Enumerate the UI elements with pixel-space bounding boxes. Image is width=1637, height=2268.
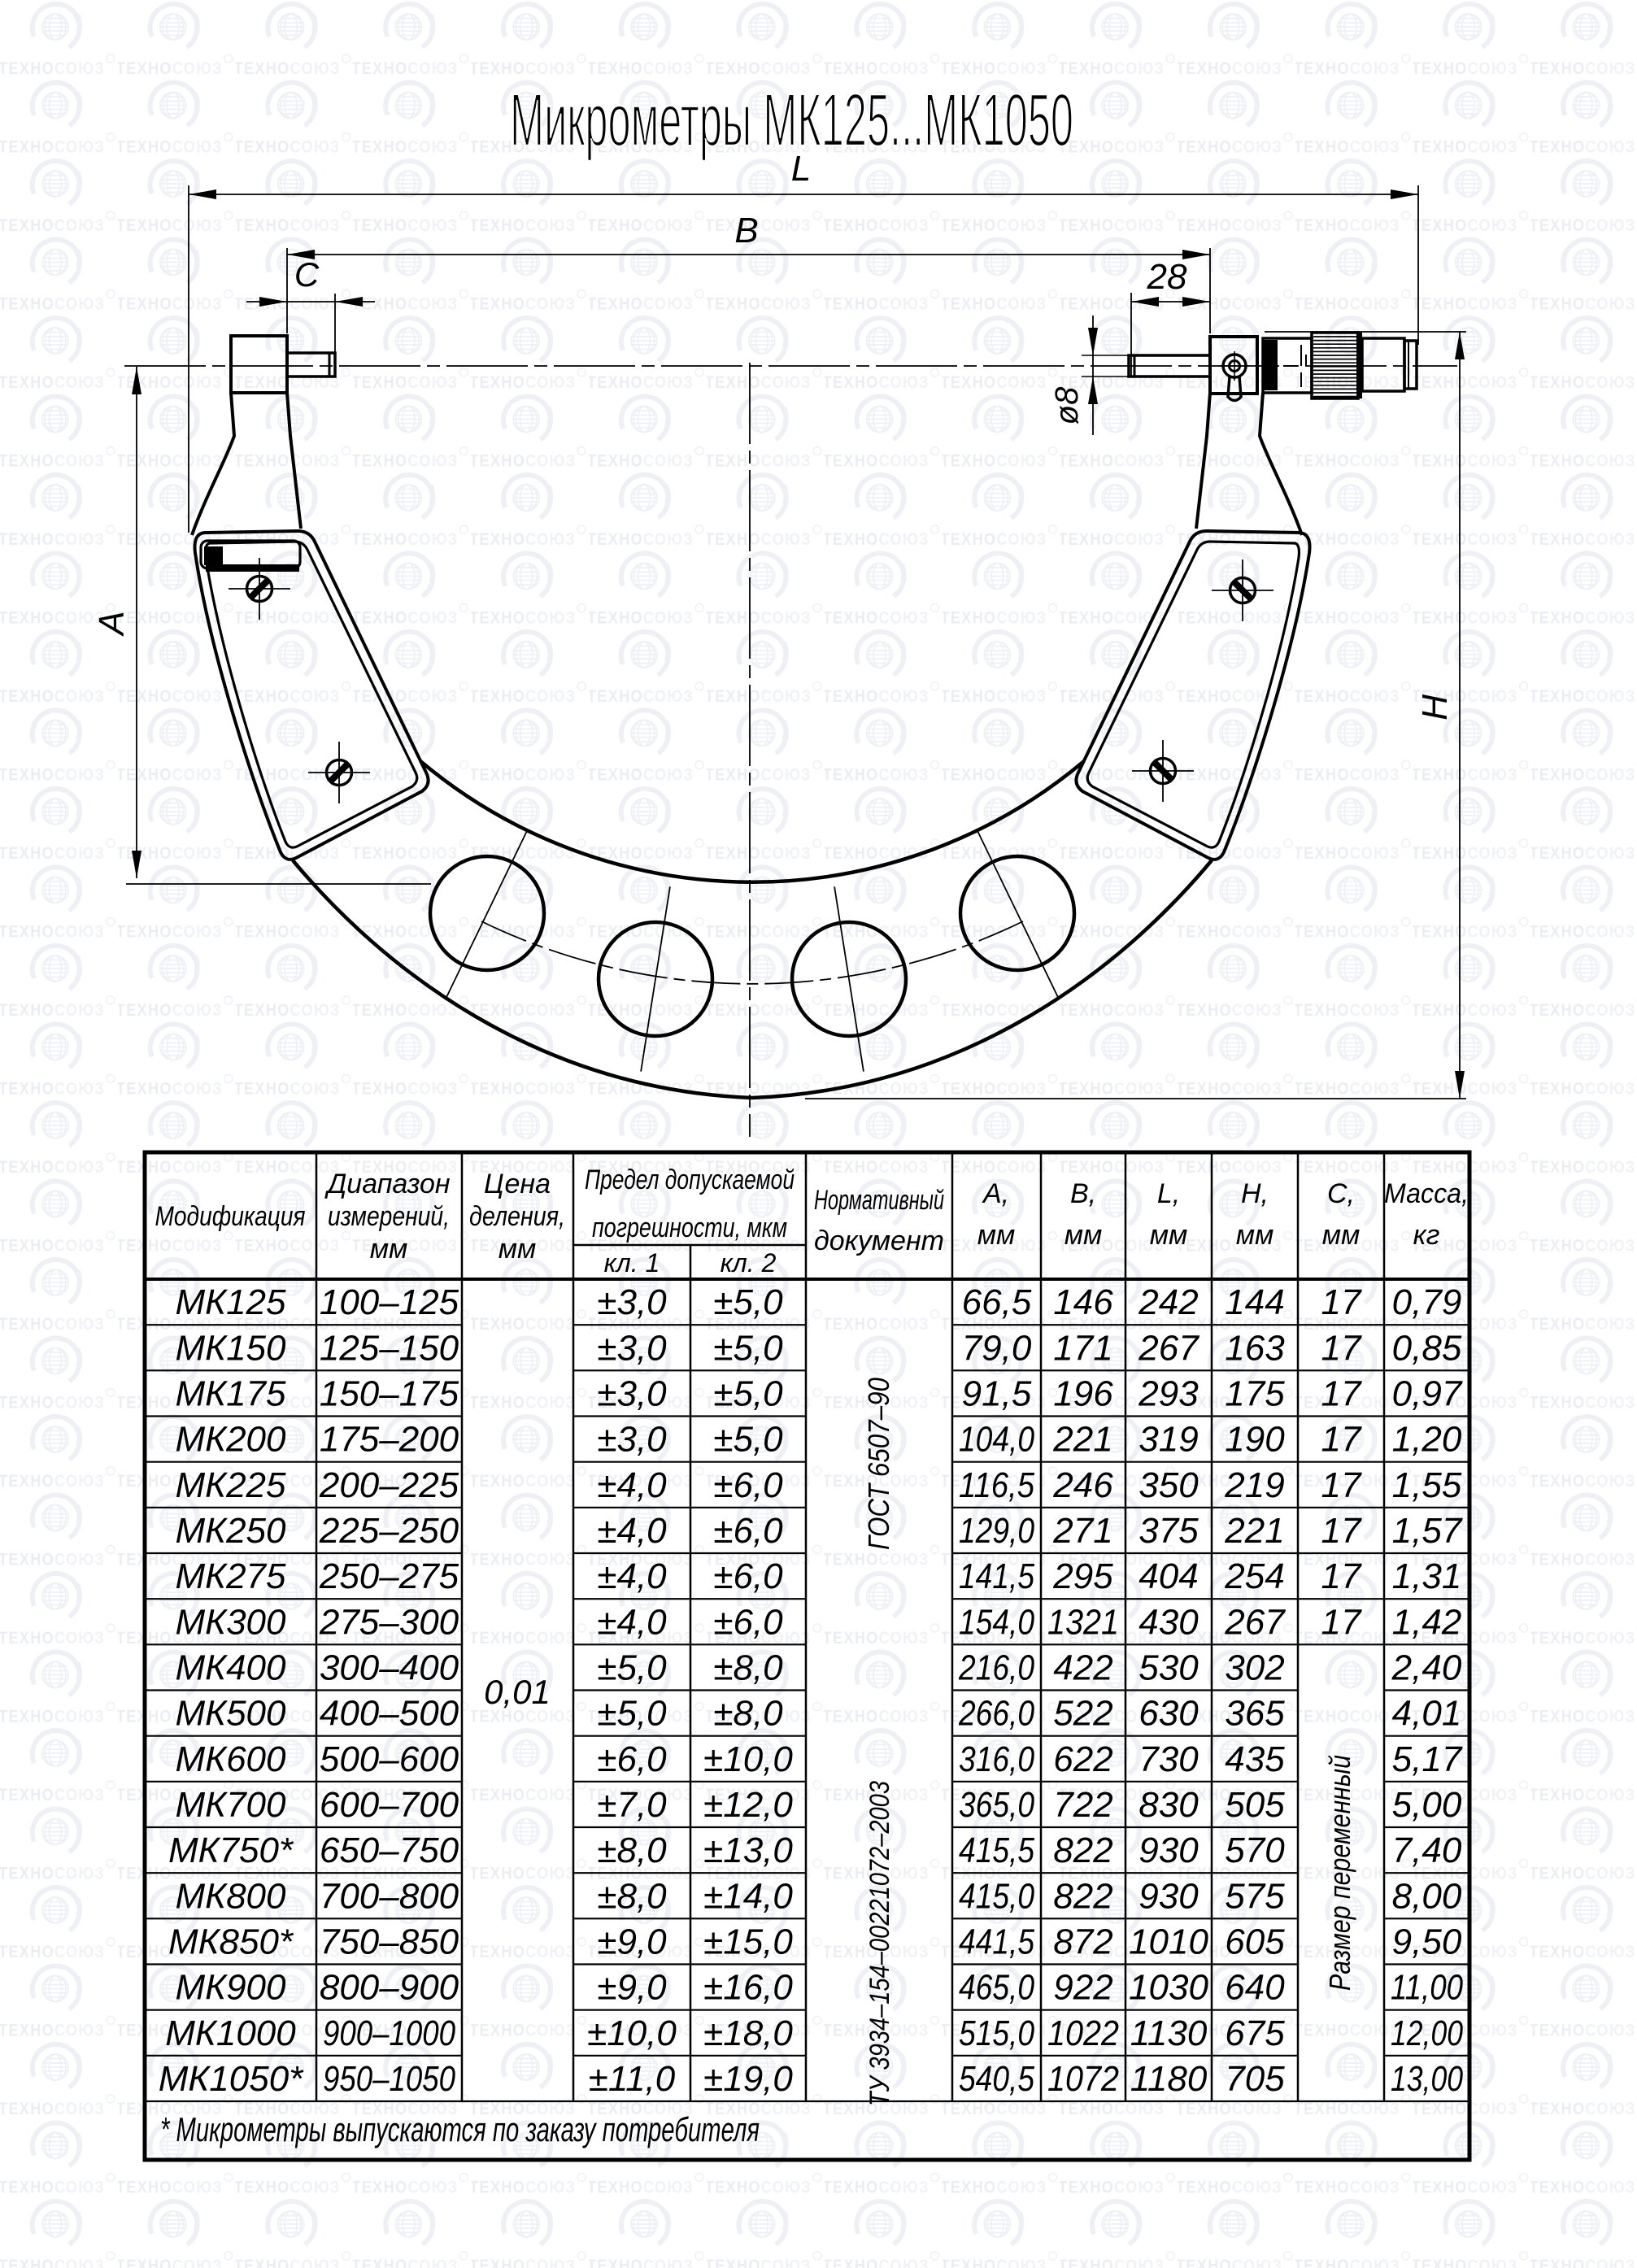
svg-text:365: 365 — [1225, 1694, 1285, 1734]
svg-text:295: 295 — [1052, 1556, 1113, 1596]
svg-text:515,0: 515,0 — [959, 2013, 1034, 2053]
svg-text:650–750: 650–750 — [320, 1831, 459, 1870]
svg-text:±4,0: ±4,0 — [597, 1465, 667, 1505]
svg-text:175: 175 — [1225, 1374, 1285, 1414]
svg-text:мм: мм — [499, 1234, 537, 1265]
svg-text:±18,0: ±18,0 — [703, 2013, 793, 2053]
svg-text:±7,0: ±7,0 — [597, 1785, 667, 1825]
svg-text:мм: мм — [977, 1220, 1016, 1251]
svg-text:171: 171 — [1053, 1328, 1112, 1368]
svg-text:66,5: 66,5 — [962, 1282, 1032, 1322]
svg-text:872: 872 — [1053, 1922, 1112, 1962]
svg-text:МК400: МК400 — [176, 1648, 287, 1688]
svg-text:365,0: 365,0 — [959, 1785, 1034, 1825]
svg-text:±9,0: ±9,0 — [597, 1968, 667, 2008]
svg-text:Масса,: Масса, — [1384, 1178, 1469, 1209]
svg-text:МК175: МК175 — [176, 1374, 287, 1414]
svg-text:±6,0: ±6,0 — [713, 1511, 783, 1551]
svg-text:950–1050: 950–1050 — [323, 2059, 455, 2099]
svg-text:1130: 1130 — [1130, 2013, 1208, 2053]
svg-text:±13,0: ±13,0 — [703, 1831, 793, 1870]
svg-text:17: 17 — [1321, 1556, 1362, 1596]
svg-text:17: 17 — [1321, 1282, 1362, 1322]
svg-text:A: A — [92, 611, 132, 637]
svg-text:722: 722 — [1053, 1785, 1112, 1825]
svg-text:ТУ 3934–154–00221072–2003: ТУ 3934–154–00221072–2003 — [864, 1781, 895, 2106]
svg-text:ГОСТ 6507–90: ГОСТ 6507–90 — [862, 1378, 895, 1550]
svg-text:МК700: МК700 — [176, 1785, 287, 1825]
svg-text:300–400: 300–400 — [320, 1648, 459, 1688]
svg-text:144: 144 — [1225, 1282, 1284, 1322]
svg-text:275–300: 275–300 — [319, 1602, 459, 1642]
svg-text:465,0: 465,0 — [959, 1968, 1034, 2008]
svg-text:МК250: МК250 — [176, 1511, 287, 1551]
svg-text:435: 435 — [1225, 1739, 1285, 1779]
svg-text:150–175: 150–175 — [320, 1374, 459, 1414]
svg-text:0,97: 0,97 — [1392, 1374, 1463, 1414]
svg-text:МК275: МК275 — [176, 1556, 287, 1596]
svg-text:C: C — [294, 255, 320, 294]
svg-text:9,50: 9,50 — [1392, 1922, 1462, 1962]
svg-text:мм: мм — [1322, 1220, 1361, 1251]
svg-text:±3,0: ±3,0 — [597, 1328, 667, 1368]
svg-text:505: 505 — [1225, 1785, 1285, 1825]
svg-text:4,01: 4,01 — [1392, 1694, 1462, 1734]
svg-text:МК600: МК600 — [176, 1739, 287, 1779]
svg-text:930: 930 — [1138, 1876, 1199, 1916]
svg-text:622: 622 — [1053, 1739, 1112, 1779]
svg-text:мм: мм — [1236, 1220, 1274, 1251]
svg-text:17: 17 — [1321, 1420, 1362, 1460]
svg-text:МК850*: МК850* — [168, 1922, 294, 1962]
svg-text:319: 319 — [1138, 1420, 1198, 1460]
svg-text:146: 146 — [1053, 1282, 1113, 1322]
svg-text:1,42: 1,42 — [1392, 1602, 1462, 1642]
svg-text:0,85: 0,85 — [1392, 1328, 1462, 1368]
svg-text:1072: 1072 — [1047, 2059, 1119, 2099]
svg-text:221: 221 — [1052, 1420, 1112, 1460]
svg-text:±12,0: ±12,0 — [703, 1785, 793, 1825]
svg-text:* Микрометры выпускаются по за: * Микрометры выпускаются по заказу потре… — [160, 2110, 760, 2148]
svg-text:±3,0: ±3,0 — [597, 1374, 667, 1414]
svg-text:79,0: 79,0 — [962, 1328, 1032, 1368]
svg-text:мм: мм — [370, 1234, 408, 1265]
svg-text:±6,0: ±6,0 — [713, 1465, 783, 1505]
svg-text:750–850: 750–850 — [320, 1922, 459, 1962]
svg-text:250–275: 250–275 — [319, 1556, 459, 1596]
svg-text:Цена: Цена — [484, 1169, 551, 1199]
svg-text:±5,0: ±5,0 — [597, 1648, 667, 1688]
svg-text:МК500: МК500 — [176, 1694, 287, 1734]
svg-text:266,0: 266,0 — [958, 1694, 1034, 1734]
svg-text:302: 302 — [1225, 1648, 1284, 1688]
svg-text:293: 293 — [1138, 1374, 1199, 1414]
svg-text:±4,0: ±4,0 — [597, 1511, 667, 1551]
svg-text:422: 422 — [1053, 1648, 1112, 1688]
svg-text:кл. 1: кл. 1 — [604, 1248, 660, 1278]
svg-text:17: 17 — [1321, 1465, 1362, 1505]
svg-text:МК125: МК125 — [176, 1282, 287, 1322]
svg-text:800–900: 800–900 — [320, 1968, 459, 2008]
svg-text:100–125: 100–125 — [320, 1282, 459, 1322]
svg-text:163: 163 — [1225, 1328, 1285, 1368]
svg-text:деления,: деления, — [469, 1201, 565, 1232]
svg-text:441,5: 441,5 — [959, 1922, 1034, 1962]
svg-text:922: 922 — [1053, 1968, 1112, 2008]
svg-text:254: 254 — [1224, 1556, 1284, 1596]
svg-text:700–800: 700–800 — [320, 1876, 459, 1916]
svg-text:1180: 1180 — [1130, 2059, 1208, 2099]
svg-text:125–150: 125–150 — [320, 1328, 459, 1368]
svg-text:±8,0: ±8,0 — [713, 1694, 783, 1734]
svg-text:МК800: МК800 — [176, 1876, 287, 1916]
svg-text:316,0: 316,0 — [959, 1739, 1034, 1779]
svg-text:12,00: 12,00 — [1391, 2013, 1463, 2053]
svg-text:575: 575 — [1225, 1876, 1285, 1916]
svg-text:900–1000: 900–1000 — [323, 2013, 455, 2053]
svg-text:±3,0: ±3,0 — [597, 1420, 667, 1460]
svg-text:L: L — [791, 149, 811, 189]
svg-text:±8,0: ±8,0 — [713, 1648, 783, 1688]
svg-text:±11,0: ±11,0 — [589, 2059, 676, 2099]
svg-text:271: 271 — [1052, 1511, 1112, 1551]
svg-text:кг: кг — [1413, 1220, 1440, 1251]
svg-text:200–225: 200–225 — [319, 1465, 459, 1505]
svg-text:600–700: 600–700 — [320, 1785, 459, 1825]
svg-text:415,5: 415,5 — [959, 1831, 1034, 1870]
svg-text:Нормативный: Нормативный — [814, 1185, 944, 1216]
svg-text:погрешности, мкм: погрешности, мкм — [592, 1212, 787, 1243]
svg-text:630: 630 — [1138, 1694, 1199, 1734]
svg-text:С,: С, — [1327, 1178, 1355, 1209]
svg-text:116,5: 116,5 — [959, 1465, 1034, 1505]
svg-text:B: B — [734, 211, 758, 250]
svg-text:267: 267 — [1224, 1602, 1286, 1642]
svg-text:104,0: 104,0 — [959, 1420, 1034, 1460]
svg-text:500–600: 500–600 — [320, 1739, 459, 1779]
svg-text:±8,0: ±8,0 — [597, 1876, 667, 1916]
svg-text:7,40: 7,40 — [1392, 1831, 1462, 1870]
svg-text:404: 404 — [1138, 1556, 1198, 1596]
svg-text:375: 375 — [1138, 1511, 1199, 1551]
svg-text:822: 822 — [1053, 1831, 1112, 1870]
svg-text:2,40: 2,40 — [1391, 1648, 1462, 1688]
svg-text:±14,0: ±14,0 — [703, 1876, 793, 1916]
svg-text:Н,: Н, — [1241, 1178, 1269, 1209]
svg-text:246: 246 — [1052, 1465, 1113, 1505]
svg-text:675: 675 — [1225, 2013, 1285, 2053]
svg-text:5,00: 5,00 — [1392, 1785, 1462, 1825]
svg-text:Предел допускаемой: Предел допускаемой — [585, 1164, 795, 1195]
svg-text:±9,0: ±9,0 — [597, 1922, 667, 1962]
svg-text:540,5: 540,5 — [959, 2059, 1034, 2099]
svg-text:570: 570 — [1225, 1831, 1285, 1870]
svg-text:830: 830 — [1138, 1785, 1199, 1825]
svg-text:930: 930 — [1138, 1831, 1199, 1870]
svg-text:129,0: 129,0 — [959, 1511, 1034, 1551]
svg-text:822: 822 — [1053, 1876, 1112, 1916]
svg-text:267: 267 — [1138, 1328, 1199, 1368]
svg-text:5,17: 5,17 — [1392, 1739, 1463, 1779]
svg-text:L,: L, — [1157, 1178, 1180, 1209]
svg-text:ø8: ø8 — [1049, 386, 1085, 424]
svg-text:17: 17 — [1321, 1511, 1362, 1551]
svg-text:±15,0: ±15,0 — [703, 1922, 793, 1962]
svg-text:28: 28 — [1147, 257, 1187, 297]
svg-text:±6,0: ±6,0 — [597, 1739, 667, 1779]
svg-text:730: 730 — [1138, 1739, 1199, 1779]
svg-text:522: 522 — [1053, 1694, 1112, 1734]
svg-text:мм: мм — [1150, 1220, 1188, 1251]
svg-text:8,00: 8,00 — [1392, 1876, 1462, 1916]
svg-text:11,00: 11,00 — [1391, 1968, 1463, 2008]
svg-text:±6,0: ±6,0 — [713, 1556, 783, 1596]
svg-text:17: 17 — [1321, 1328, 1362, 1368]
svg-text:МК300: МК300 — [176, 1602, 287, 1642]
svg-text:640: 640 — [1225, 1968, 1285, 2008]
svg-text:±5,0: ±5,0 — [713, 1420, 783, 1460]
svg-text:190: 190 — [1225, 1420, 1285, 1460]
svg-text:H: H — [1415, 694, 1455, 720]
svg-text:175–200: 175–200 — [320, 1420, 459, 1460]
svg-text:измерений,: измерений, — [328, 1201, 450, 1232]
svg-text:А,: А, — [982, 1178, 1009, 1209]
svg-text:530: 530 — [1138, 1648, 1199, 1688]
svg-text:±10,0: ±10,0 — [703, 1739, 793, 1779]
svg-text:Модификация: Модификация — [155, 1201, 306, 1232]
svg-text:МК150: МК150 — [176, 1328, 287, 1368]
svg-text:±4,0: ±4,0 — [597, 1602, 667, 1642]
svg-text:МК1050*: МК1050* — [159, 2059, 304, 2099]
svg-text:±3,0: ±3,0 — [597, 1282, 667, 1322]
svg-text:1010: 1010 — [1129, 1922, 1208, 1962]
svg-text:±10,0: ±10,0 — [587, 2013, 677, 2053]
svg-text:350: 350 — [1138, 1465, 1199, 1505]
svg-text:±19,0: ±19,0 — [703, 2059, 793, 2099]
svg-text:225–250: 225–250 — [319, 1511, 459, 1551]
svg-text:±5,0: ±5,0 — [597, 1694, 667, 1734]
svg-text:17: 17 — [1321, 1374, 1362, 1414]
svg-text:МК200: МК200 — [176, 1420, 287, 1460]
svg-text:кл. 2: кл. 2 — [721, 1248, 777, 1278]
svg-text:430: 430 — [1138, 1602, 1199, 1642]
svg-text:0,79: 0,79 — [1392, 1282, 1462, 1322]
svg-text:документ: документ — [814, 1225, 944, 1256]
svg-text:91,5: 91,5 — [962, 1374, 1032, 1414]
svg-text:1,57: 1,57 — [1392, 1511, 1463, 1551]
svg-text:1321: 1321 — [1047, 1602, 1119, 1642]
svg-text:154,0: 154,0 — [959, 1602, 1034, 1642]
svg-text:216,0: 216,0 — [958, 1648, 1034, 1688]
svg-text:1,20: 1,20 — [1392, 1420, 1462, 1460]
svg-text:400–500: 400–500 — [320, 1694, 459, 1734]
svg-text:МК1000: МК1000 — [165, 2013, 296, 2053]
svg-text:±16,0: ±16,0 — [703, 1968, 793, 2008]
svg-text:1022: 1022 — [1047, 2013, 1119, 2053]
svg-text:В,: В, — [1070, 1178, 1096, 1209]
svg-text:±4,0: ±4,0 — [597, 1556, 667, 1596]
svg-text:±5,0: ±5,0 — [713, 1374, 783, 1414]
svg-text:мм: мм — [1064, 1220, 1103, 1251]
svg-text:МК900: МК900 — [176, 1968, 287, 2008]
svg-text:±8,0: ±8,0 — [597, 1831, 667, 1870]
svg-text:±5,0: ±5,0 — [713, 1282, 783, 1322]
svg-text:МК225: МК225 — [176, 1465, 287, 1505]
svg-text:1,31: 1,31 — [1392, 1556, 1462, 1596]
svg-text:242: 242 — [1138, 1282, 1198, 1322]
svg-text:Диапазон: Диапазон — [324, 1169, 451, 1199]
svg-text:221: 221 — [1224, 1511, 1284, 1551]
svg-text:1,55: 1,55 — [1392, 1465, 1462, 1505]
svg-text:МК750*: МК750* — [168, 1831, 294, 1870]
svg-text:Размер переменный: Размер переменный — [1323, 1755, 1356, 1991]
svg-text:196: 196 — [1053, 1374, 1113, 1414]
svg-text:±6,0: ±6,0 — [713, 1602, 783, 1642]
svg-text:705: 705 — [1225, 2059, 1285, 2099]
svg-text:1030: 1030 — [1129, 1968, 1208, 2008]
svg-text:219: 219 — [1224, 1465, 1284, 1505]
svg-text:415,0: 415,0 — [959, 1876, 1034, 1916]
svg-text:13,00: 13,00 — [1391, 2059, 1463, 2099]
svg-text:0,01: 0,01 — [484, 1673, 551, 1711]
svg-text:141,5: 141,5 — [959, 1556, 1034, 1596]
svg-text:±5,0: ±5,0 — [713, 1328, 783, 1368]
svg-text:605: 605 — [1225, 1922, 1285, 1962]
svg-text:17: 17 — [1321, 1602, 1362, 1642]
